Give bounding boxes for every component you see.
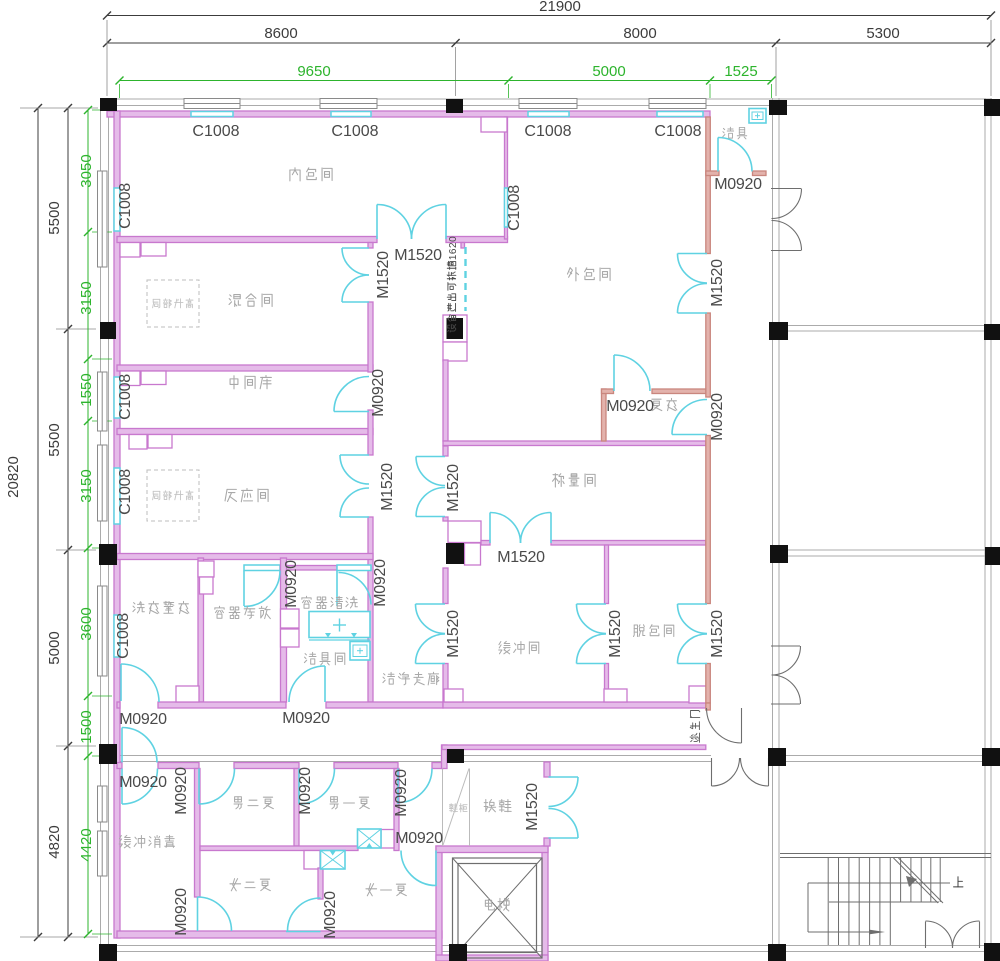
svg-text:M1520: M1520 <box>379 463 396 511</box>
svg-text:0: 0 <box>448 236 459 242</box>
svg-text:8000: 8000 <box>623 25 656 42</box>
svg-text:M0920: M0920 <box>714 176 762 193</box>
svg-text:M0920: M0920 <box>322 891 339 939</box>
svg-text:1500: 1500 <box>78 710 95 743</box>
svg-text:3150: 3150 <box>78 469 95 502</box>
svg-text:5300: 5300 <box>866 25 899 42</box>
svg-text:M1520: M1520 <box>375 251 392 299</box>
svg-text:C1008: C1008 <box>115 613 132 659</box>
svg-text:M0920: M0920 <box>297 767 314 815</box>
svg-text:M1520: M1520 <box>445 610 462 658</box>
svg-text:5500: 5500 <box>46 423 63 456</box>
svg-text:21900: 21900 <box>539 0 581 15</box>
svg-text:M0920: M0920 <box>282 710 330 727</box>
svg-text:3600: 3600 <box>78 607 95 640</box>
svg-text:M0920: M0920 <box>372 559 389 607</box>
svg-text:C1008: C1008 <box>654 123 701 140</box>
svg-text:M0920: M0920 <box>119 711 167 728</box>
svg-text:M0920: M0920 <box>173 767 190 815</box>
svg-text:C1008: C1008 <box>117 374 134 420</box>
svg-text:4820: 4820 <box>46 825 63 858</box>
svg-text:M1520: M1520 <box>394 247 442 264</box>
svg-text:C1008: C1008 <box>524 123 571 140</box>
svg-text:M0920: M0920 <box>283 560 300 608</box>
svg-text:C1008: C1008 <box>117 469 134 515</box>
svg-text:M1520: M1520 <box>709 610 726 658</box>
svg-text:M0920: M0920 <box>119 774 167 791</box>
svg-text:C1008: C1008 <box>192 123 239 140</box>
svg-text:M1520: M1520 <box>445 464 462 512</box>
svg-text:C1008: C1008 <box>506 185 523 231</box>
svg-text:4420: 4420 <box>78 828 95 861</box>
svg-text:M0920: M0920 <box>709 393 726 441</box>
svg-text:1550: 1550 <box>78 373 95 406</box>
svg-text:9650: 9650 <box>297 63 330 80</box>
svg-text:M0920: M0920 <box>370 369 387 417</box>
svg-text:M0920: M0920 <box>393 769 410 817</box>
svg-text:C1008: C1008 <box>331 123 378 140</box>
svg-text:6: 6 <box>448 248 459 254</box>
svg-text:M0920: M0920 <box>606 398 654 415</box>
svg-text:M0920: M0920 <box>173 888 190 936</box>
svg-text:M1520: M1520 <box>607 610 624 658</box>
svg-text:C1008: C1008 <box>117 183 134 229</box>
svg-text:M1520: M1520 <box>497 549 545 566</box>
svg-text:M1520: M1520 <box>524 783 541 831</box>
svg-text:20820: 20820 <box>5 456 22 498</box>
svg-text:5500: 5500 <box>46 201 63 234</box>
svg-text:5000: 5000 <box>592 63 625 80</box>
svg-text:8600: 8600 <box>264 25 297 42</box>
svg-text:3050: 3050 <box>78 154 95 187</box>
svg-text:5000: 5000 <box>46 631 63 664</box>
svg-text:3150: 3150 <box>78 281 95 314</box>
svg-text:M0920: M0920 <box>395 830 443 847</box>
svg-text:M1520: M1520 <box>709 259 726 307</box>
svg-text:1525: 1525 <box>724 63 757 80</box>
